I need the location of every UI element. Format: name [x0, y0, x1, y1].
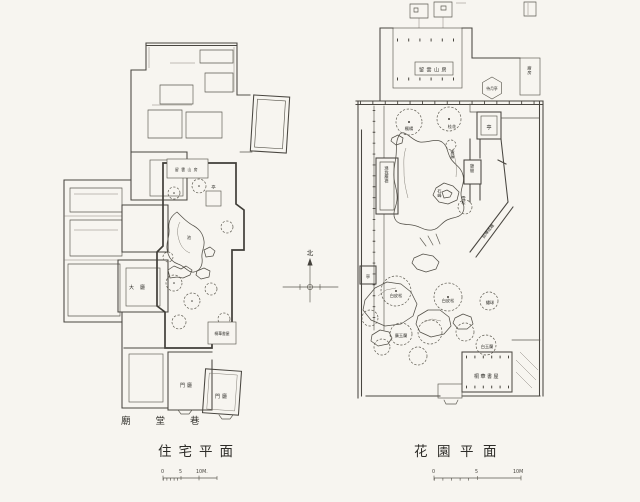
residence-east-wing: [250, 95, 289, 153]
south-rockery: 白皮松 白皮松 繡球 廣玉蘭 白玉蘭: [362, 254, 498, 365]
yanhui-chengqu-group: 延暉成趣: [480, 222, 496, 240]
garden-plan-caption: 花園平面: [414, 444, 506, 460]
liuyun-shanfang-label: 留雲山房: [419, 67, 449, 74]
garden-northeast: 廚房 待月亭: [483, 58, 541, 99]
white-pine-label-2: 白皮松: [442, 297, 455, 304]
east-pavilion-label: 亭: [486, 124, 491, 131]
kitchen-outline: [520, 58, 540, 95]
ziteng-label: 紫藤: [450, 150, 456, 160]
entry-hall-label-2: 門廳: [215, 393, 229, 400]
scanned-plan-page: 大廳 留雲山房 亭 池: [0, 0, 640, 502]
tonghua-study-label: 桐華書屋: [214, 331, 229, 336]
stone-peak-rockery: 石峰 雪松: [433, 183, 472, 214]
plans-figure: 大廳 留雲山房 亭 池: [0, 0, 640, 502]
residence-upper-rooms: [131, 43, 290, 200]
scale-10: 10M: [513, 469, 523, 475]
west-pavilion-label: 亭: [366, 273, 370, 279]
yanhui-chengqu-label: 延暉成趣: [480, 222, 496, 240]
north-label: 北: [307, 249, 314, 257]
scale-0: 0: [161, 469, 164, 475]
garden-top-structures: [410, 2, 536, 28]
residence-plan: 大廳 留雲山房 亭 池: [64, 43, 290, 480]
cedar-label: 雪松: [462, 196, 467, 206]
guihua-label: 桂花: [448, 123, 456, 130]
tonghua-study-hall: 桐華書屋: [462, 340, 540, 392]
residence-plan-caption: 住宅平面: [158, 444, 240, 460]
scale-10: 10M.: [196, 469, 208, 475]
liuyun-shanfang-label: 留雲山房: [175, 167, 200, 172]
scale-5: 5: [179, 469, 182, 475]
qijian-label: 憩間: [469, 163, 475, 174]
scale-5: 5: [475, 469, 478, 475]
liuyun-shanfang-hall: 留雲山房: [380, 28, 520, 100]
east-walkway: 亭 憩間 延暉成趣 紫藤: [446, 104, 539, 257]
hydrangea-label: 繡球: [486, 299, 495, 306]
stone-peak-label: 石峰: [437, 189, 443, 199]
pond-label: 池: [187, 234, 192, 240]
northwest-trees: 楓楊 桂花: [391, 107, 461, 145]
diwochenjin-label: 滌我塵襟: [384, 165, 390, 185]
pavilion-label: 亭: [211, 184, 215, 190]
fengyang-label: 楓楊: [405, 125, 414, 132]
residence-west-wing: 大廳: [64, 180, 168, 322]
west-half-pavilion: 亭: [360, 266, 376, 284]
entry-hall-label-1: 門廳: [180, 382, 194, 389]
garden-plan: 留雲山房 廚房 待月亭 滌我塵襟: [356, 2, 543, 480]
garden-entrance: [438, 384, 462, 404]
moon-pavilion-label: 待月亭: [486, 86, 498, 91]
tree-symbols: [163, 179, 233, 329]
pavilion-outline: [206, 191, 221, 206]
pond-shape: [167, 212, 204, 272]
garden-scale-bar: 0 5 10M: [432, 469, 523, 480]
kitchen-label: 廚房: [528, 65, 533, 76]
street-label: 廟堂巷: [121, 415, 225, 427]
great-hall-label: 大廳: [129, 284, 151, 291]
magnolia-white-label: 白玉蘭: [481, 343, 494, 350]
magnolia-grand-label: 廣玉蘭: [395, 332, 408, 339]
north-compass: 北: [283, 249, 338, 302]
scale-0: 0: [432, 469, 435, 475]
residence-garden-strip: 留雲山房 亭 池 桐華書屋: [157, 159, 244, 348]
residence-scale-bar: 0 5 10M.: [161, 469, 217, 480]
tonghua-study-label: 桐華書屋: [474, 373, 500, 380]
white-pine-label-1: 白皮松: [390, 292, 403, 299]
